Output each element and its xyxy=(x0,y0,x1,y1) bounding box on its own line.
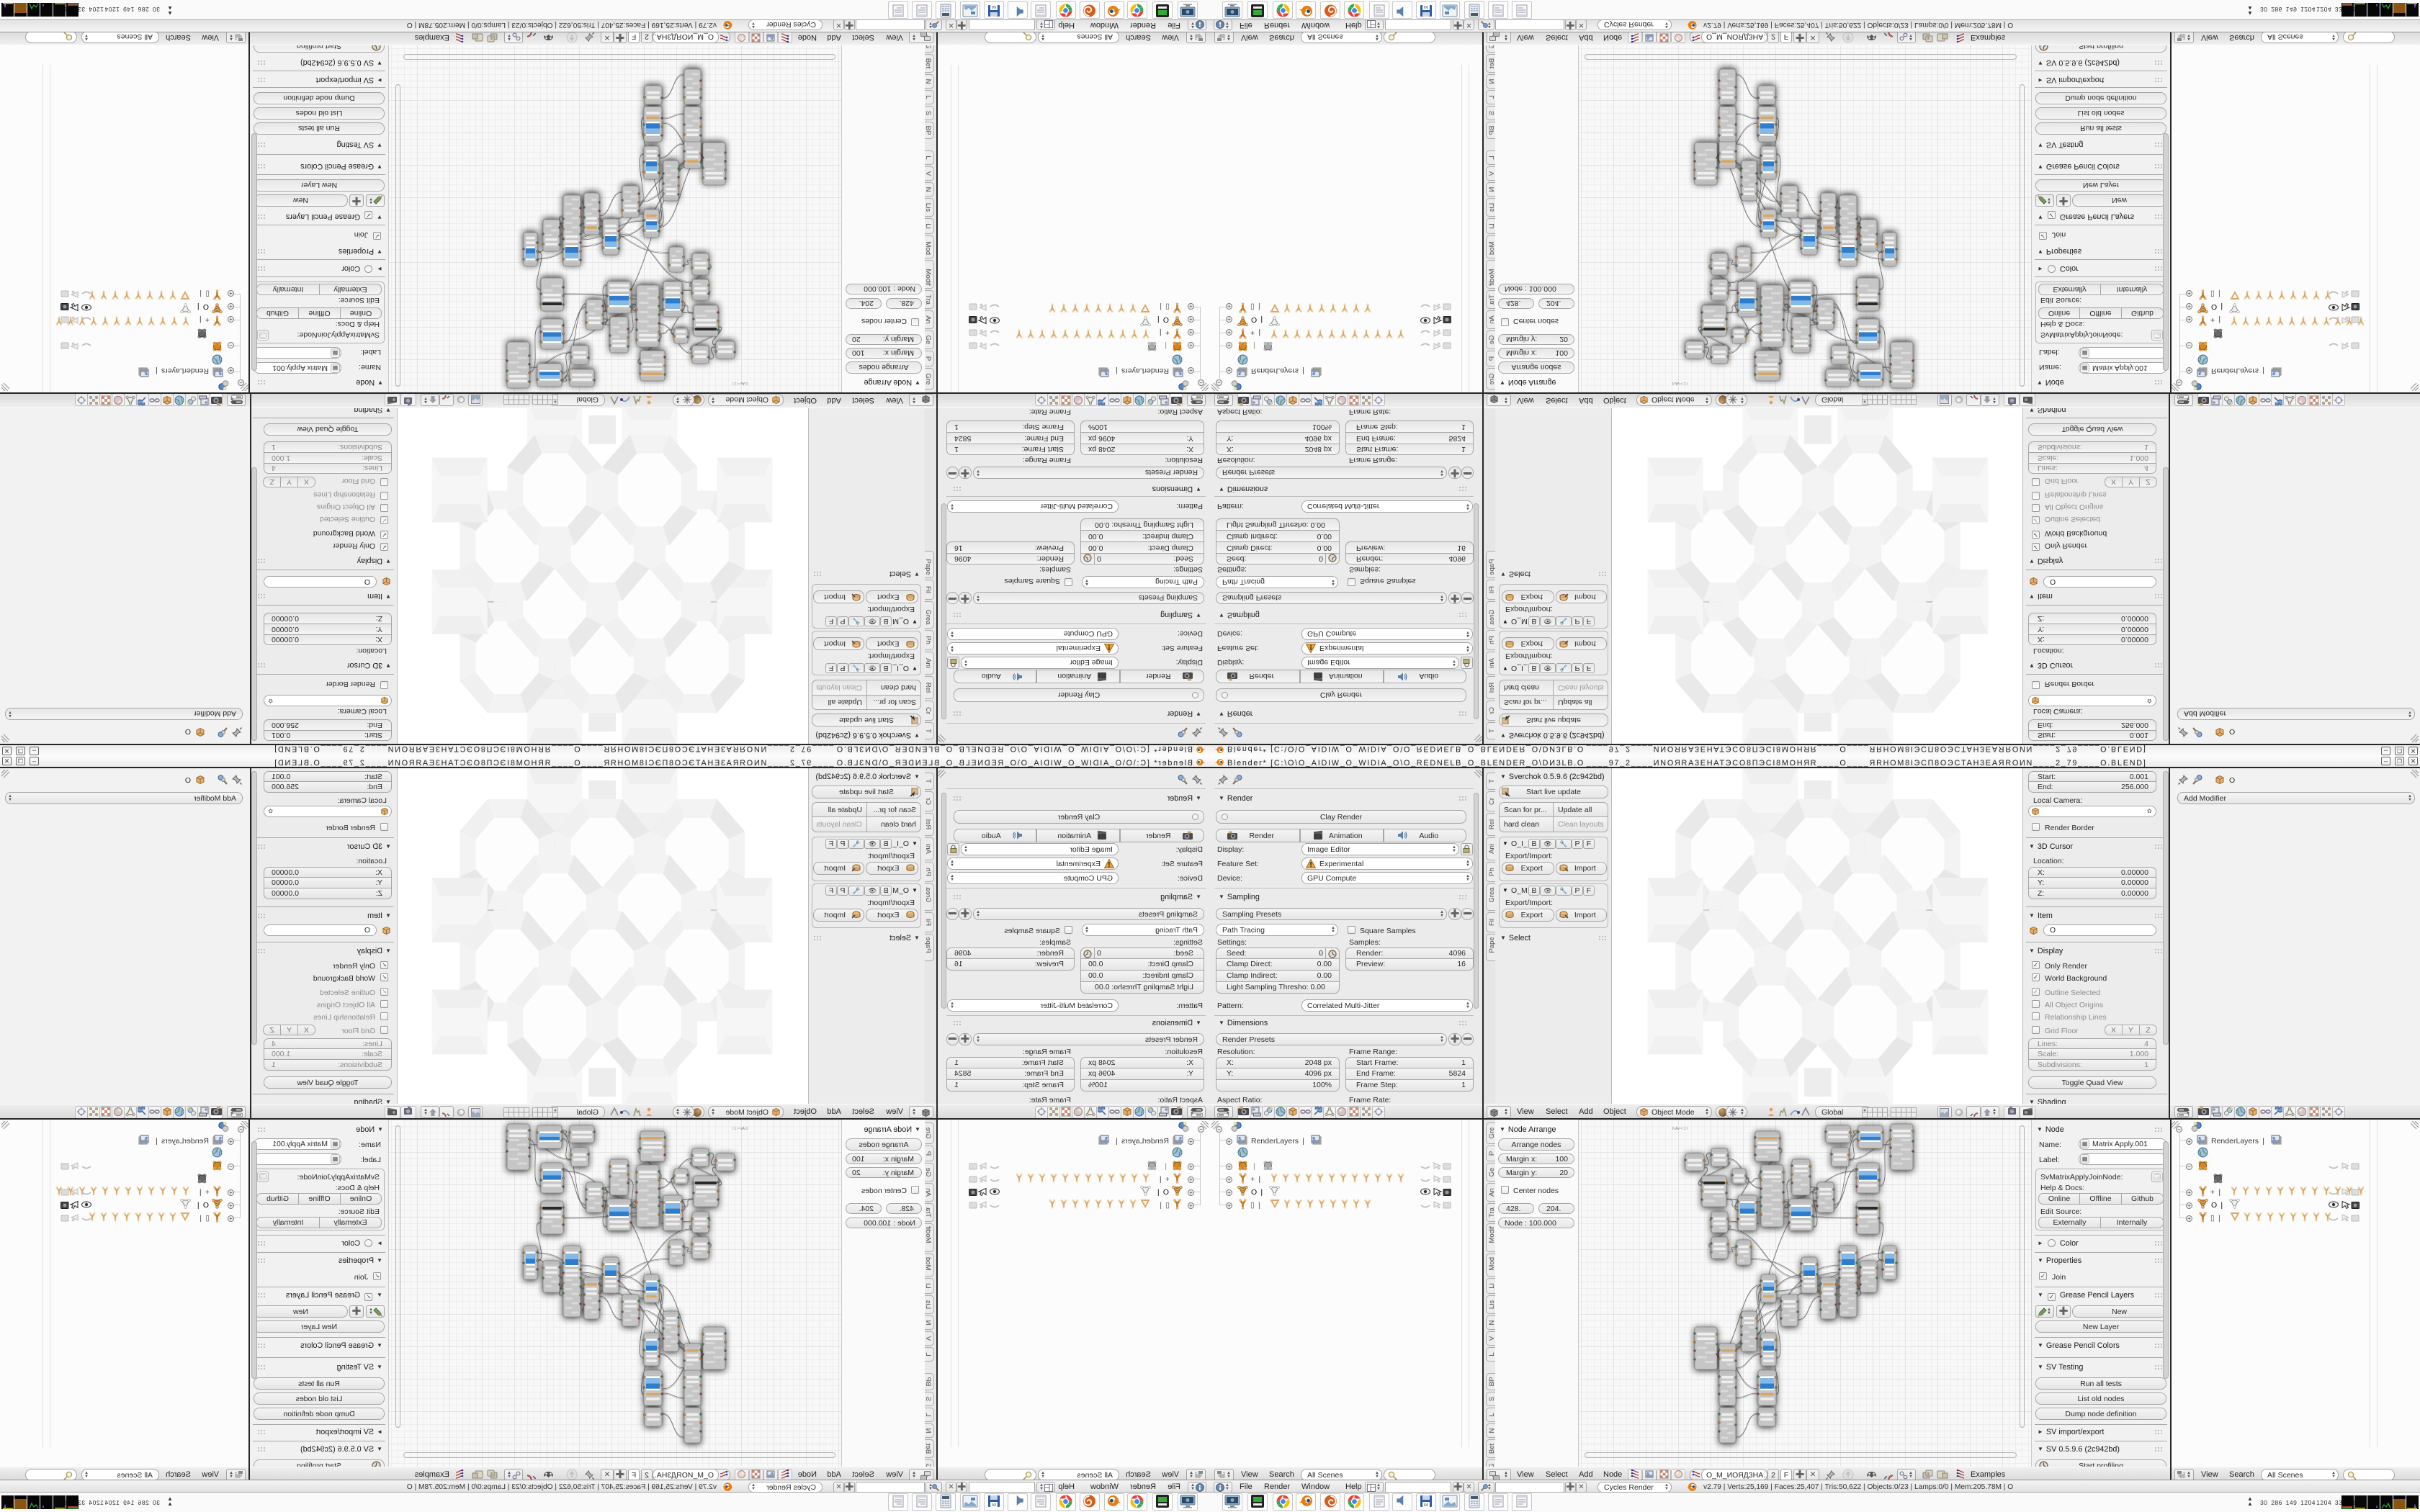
svg-text:II.Av~/ J I: II.Av~/ J I xyxy=(732,381,748,385)
svg-text:64: 64 xyxy=(1424,1503,1428,1508)
svg-text:64: 64 xyxy=(992,1503,996,1508)
svg-text:64: 64 xyxy=(992,4,996,9)
svg-text:II.Av~/ J I: II.Av~/ J I xyxy=(732,1127,748,1131)
svg-text:64: 64 xyxy=(1424,4,1428,9)
svg-text:II.Av~/ J I: II.Av~/ J I xyxy=(1672,381,1688,385)
svg-text:II.Av~/ J I: II.Av~/ J I xyxy=(1672,1127,1688,1131)
